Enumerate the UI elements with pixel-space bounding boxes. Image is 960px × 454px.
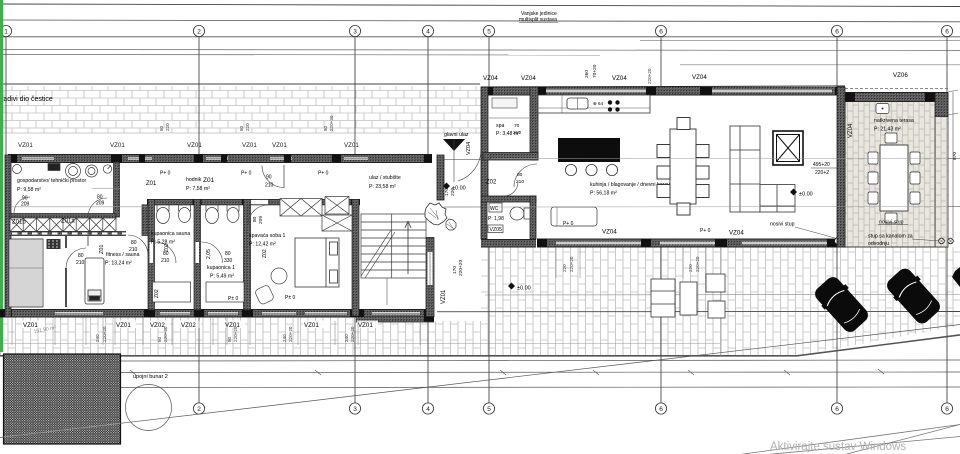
svg-text:209: 209	[96, 201, 105, 207]
svg-text:P: 56,18 m²: P: 56,18 m²	[590, 191, 617, 197]
svg-text:Z01a: Z01a	[61, 219, 75, 225]
svg-text:P: 21,43 m²: P: 21,43 m²	[874, 127, 901, 133]
svg-text:P+ 0: P+ 0	[241, 171, 252, 177]
svg-text:⊕ 64: ⊕ 64	[593, 101, 604, 106]
svg-text:P+ 0: P+ 0	[563, 221, 574, 227]
svg-text:90: 90	[266, 175, 272, 181]
svg-text:P: 9,58 m²: P: 9,58 m²	[17, 187, 41, 193]
svg-text:Z01: Z01	[146, 181, 157, 187]
svg-text:6: 6	[945, 29, 949, 36]
svg-text:1: 1	[4, 29, 8, 36]
svg-text:VZ04: VZ04	[483, 75, 498, 82]
svg-text:P: 23,58 m²: P: 23,58 m²	[369, 184, 396, 190]
svg-text:220: 220	[562, 264, 567, 272]
svg-text:80: 80	[323, 125, 328, 131]
svg-text:VZ04: VZ04	[466, 142, 472, 155]
svg-text:6: 6	[659, 406, 663, 413]
svg-text:210: 210	[76, 260, 85, 266]
svg-text:209: 209	[258, 216, 264, 224]
svg-text:2: 2	[197, 406, 201, 413]
svg-text:220: 220	[165, 123, 170, 131]
svg-text:210: 210	[129, 247, 138, 253]
svg-text:P+ 0: P+ 0	[160, 171, 171, 177]
svg-text:220+20: 220+20	[350, 326, 355, 342]
svg-text:5: 5	[487, 406, 491, 413]
svg-text:220: 220	[688, 264, 693, 272]
svg-text:P: 7,58 m²: P: 7,58 m²	[186, 186, 210, 192]
svg-text:VZ01: VZ01	[242, 142, 257, 149]
svg-text:VZ01: VZ01	[116, 322, 131, 329]
svg-text:4: 4	[426, 29, 430, 36]
svg-text:3: 3	[353, 406, 357, 413]
svg-text:Aktivirajte sustav Windows: Aktivirajte sustav Windows	[770, 441, 906, 453]
svg-text:VZ01: VZ01	[344, 142, 359, 149]
svg-text:VZ01: VZ01	[441, 289, 447, 304]
svg-text:Z01: Z01	[99, 245, 105, 254]
svg-text:210: 210	[161, 258, 170, 264]
svg-text:80: 80	[131, 240, 137, 246]
svg-text:220+20: 220+20	[233, 326, 238, 342]
svg-text:6: 6	[945, 406, 949, 413]
svg-text:P± 0: P± 0	[228, 296, 238, 302]
svg-text:220+20: 220+20	[647, 68, 652, 84]
svg-text:4: 4	[426, 406, 430, 413]
svg-text:Z02: Z02	[262, 249, 268, 258]
svg-text:80: 80	[252, 216, 258, 222]
svg-text:kupaonica sauna: kupaonica sauna	[151, 231, 190, 237]
svg-text:glavni ulaz: glavni ulaz	[444, 132, 469, 138]
svg-text:80: 80	[159, 125, 164, 131]
svg-text:70: 70	[514, 123, 520, 129]
svg-text:P+ 0: P+ 0	[700, 228, 711, 234]
svg-text:gospodarstvo/ tehnički prostor: gospodarstvo/ tehnički prostor	[17, 178, 86, 184]
svg-text:VZ04: VZ04	[848, 123, 854, 138]
svg-text:VZ04: VZ04	[612, 75, 627, 82]
svg-text:stup sa kanalom za: stup sa kanalom za	[868, 234, 913, 240]
svg-text:6: 6	[835, 406, 839, 413]
svg-text:80: 80	[225, 251, 231, 257]
svg-text:210: 210	[516, 179, 524, 185]
svg-text:170: 170	[452, 266, 458, 274]
svg-text:P: 5,49 m²: P: 5,49 m²	[210, 274, 234, 280]
svg-text:220+20: 220+20	[163, 326, 168, 342]
svg-text:VZ01: VZ01	[304, 322, 319, 329]
svg-text:VZ04: VZ04	[602, 229, 617, 236]
svg-text:6: 6	[659, 29, 663, 36]
svg-text:170: 170	[444, 188, 450, 196]
svg-text:P± 0: P± 0	[285, 295, 295, 301]
svg-text:VZ05: VZ05	[490, 227, 503, 233]
svg-text:220+20: 220+20	[458, 260, 464, 276]
svg-text:80: 80	[517, 172, 523, 178]
svg-text:VZ01: VZ01	[358, 322, 373, 329]
svg-text:330: 330	[224, 258, 233, 264]
svg-text:VZ04: VZ04	[692, 74, 707, 81]
svg-text:±0.00: ±0.00	[517, 286, 531, 292]
svg-text:VZ01: VZ01	[272, 142, 287, 149]
svg-text:220+20: 220+20	[695, 256, 700, 272]
svg-text:80: 80	[157, 336, 162, 342]
svg-text:220: 220	[245, 123, 250, 131]
svg-text:210: 210	[513, 130, 521, 136]
svg-text:VZ01: VZ01	[18, 142, 33, 149]
svg-text:Z02: Z02	[154, 289, 160, 298]
svg-text:VZ01: VZ01	[23, 322, 38, 329]
svg-text:240: 240	[344, 334, 349, 342]
svg-text:VZ02: VZ02	[181, 322, 196, 329]
svg-text:multisplit sustava: multisplit sustava	[519, 17, 557, 23]
svg-text:220+20: 220+20	[288, 326, 293, 342]
svg-text:210: 210	[265, 183, 274, 189]
svg-text:240: 240	[95, 334, 100, 342]
svg-text:VZ04: VZ04	[729, 230, 744, 237]
svg-text:220: 220	[450, 188, 456, 196]
svg-text:80: 80	[239, 125, 244, 131]
svg-text:kupaonica 1: kupaonica 1	[207, 265, 235, 271]
svg-text:ulaz / stubište: ulaz / stubište	[369, 175, 401, 181]
svg-text:hodnik: hodnik	[186, 177, 202, 183]
svg-text:spa: spa	[496, 123, 504, 129]
svg-text:Z01b: Z01b	[12, 220, 26, 226]
svg-text:P: 12,42 m²: P: 12,42 m²	[249, 242, 276, 248]
svg-text:odvodnju: odvodnju	[868, 241, 889, 247]
svg-text:nosivi stup: nosivi stup	[770, 222, 795, 228]
svg-text:80: 80	[78, 253, 84, 259]
svg-text:spavaća soba 1: spavaća soba 1	[249, 233, 285, 239]
svg-text:870: 870	[952, 152, 958, 160]
svg-text:260: 260	[584, 70, 590, 78]
svg-text:6: 6	[835, 29, 839, 36]
svg-text:220+20: 220+20	[569, 256, 574, 272]
svg-text:P: 1,98: P: 1,98	[488, 216, 504, 222]
svg-text:Z02: Z02	[164, 243, 170, 252]
svg-text:VZ06: VZ06	[893, 72, 908, 79]
svg-text:220+2: 220+2	[815, 170, 829, 176]
svg-text:Z01: Z01	[203, 177, 215, 184]
svg-text:80: 80	[227, 336, 232, 342]
svg-text:70+20: 70+20	[592, 64, 598, 78]
svg-text:VZ04: VZ04	[521, 75, 536, 82]
svg-text:495+20: 495+20	[813, 162, 830, 168]
svg-text:±0.00: ±0.00	[799, 192, 813, 198]
svg-text:radivi dio čestice: radivi dio čestice	[1, 96, 53, 103]
svg-text:VZ01: VZ01	[110, 142, 125, 149]
svg-text:P+ 0: P+ 0	[318, 171, 329, 177]
svg-text:natkrivena terasa: natkrivena terasa	[874, 118, 914, 124]
svg-text:VZ01: VZ01	[187, 142, 202, 149]
svg-text:240: 240	[282, 334, 287, 342]
svg-text:P: 13,24 m²: P: 13,24 m²	[105, 261, 132, 267]
svg-text:upojni bunar 2: upojni bunar 2	[133, 374, 168, 380]
svg-text:2,05: 2,05	[206, 249, 212, 259]
svg-text:3: 3	[353, 29, 357, 36]
svg-text:220+20: 220+20	[329, 115, 334, 131]
svg-text:2: 2	[197, 29, 201, 36]
svg-text:5: 5	[487, 29, 491, 36]
svg-text:Z02: Z02	[486, 180, 497, 186]
